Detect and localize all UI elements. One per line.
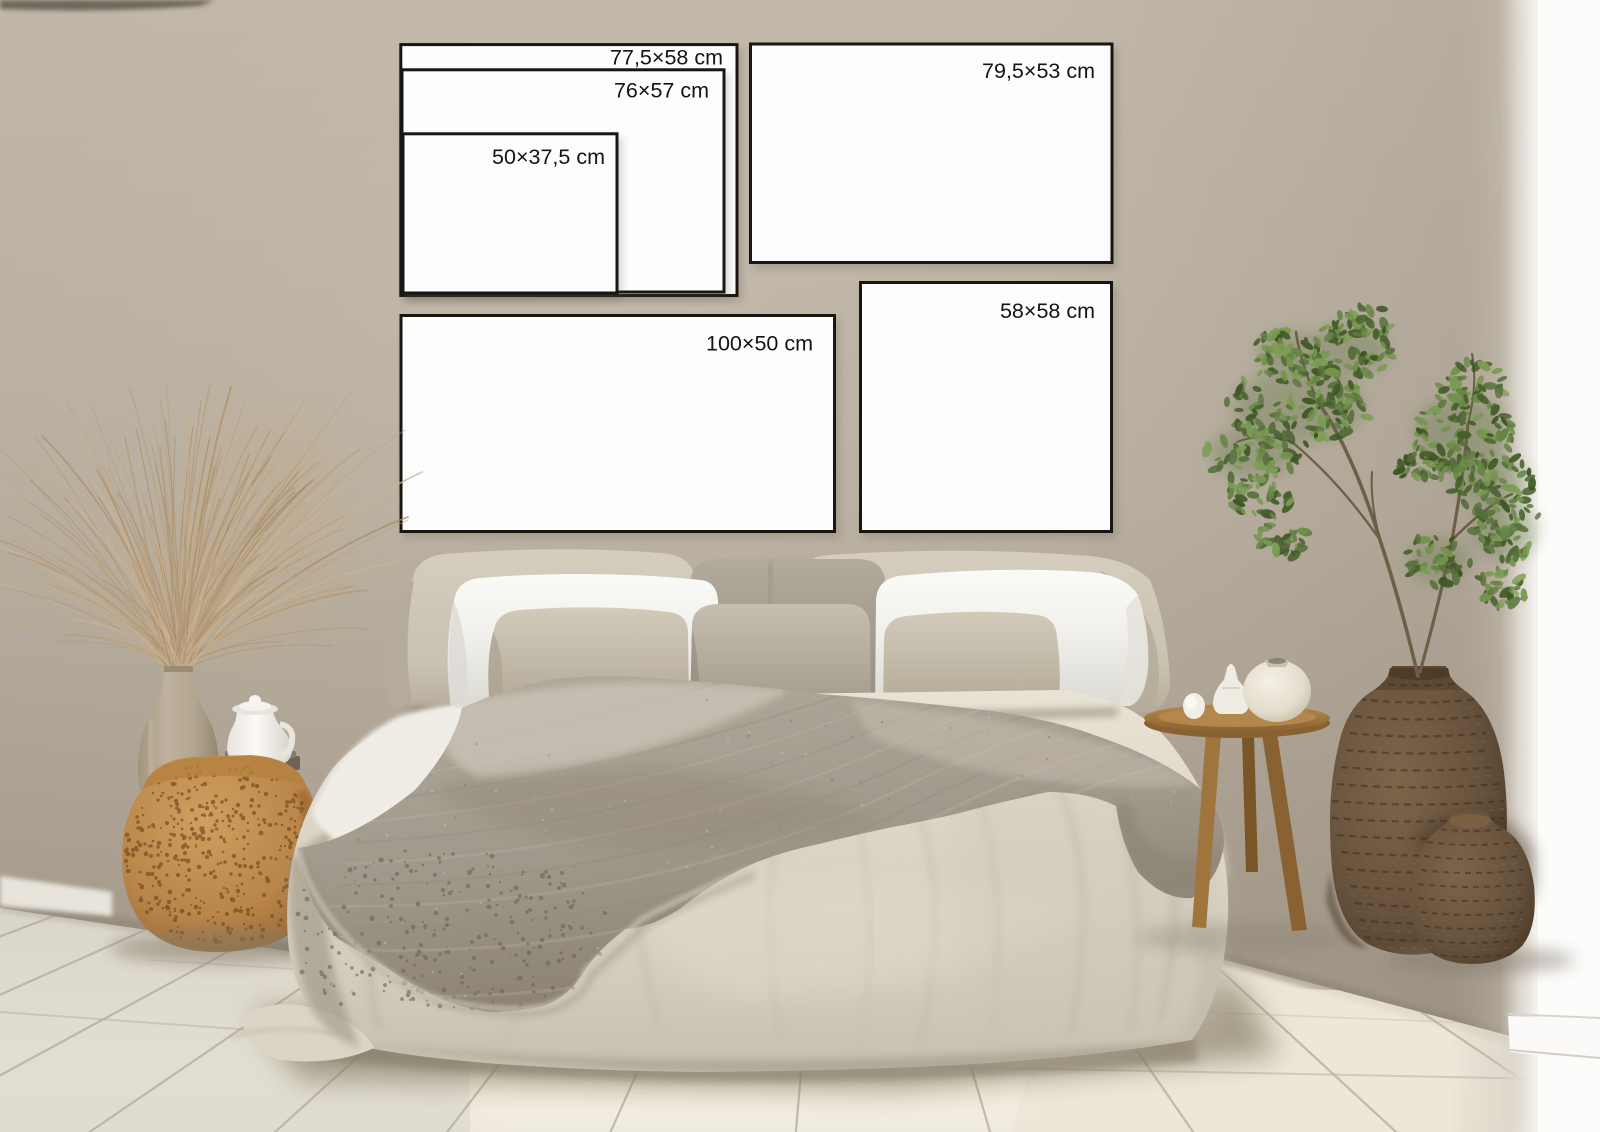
svg-text:58×58 cm: 58×58 cm [1000,299,1095,323]
svg-text:76×57 cm: 76×57 cm [614,79,709,103]
svg-text:79,5×53 cm: 79,5×53 cm [982,59,1095,83]
svg-text:77,5×58 cm: 77,5×58 cm [610,46,723,70]
svg-text:100×50 cm: 100×50 cm [706,332,813,356]
svg-text:50×37,5 cm: 50×37,5 cm [492,145,605,169]
